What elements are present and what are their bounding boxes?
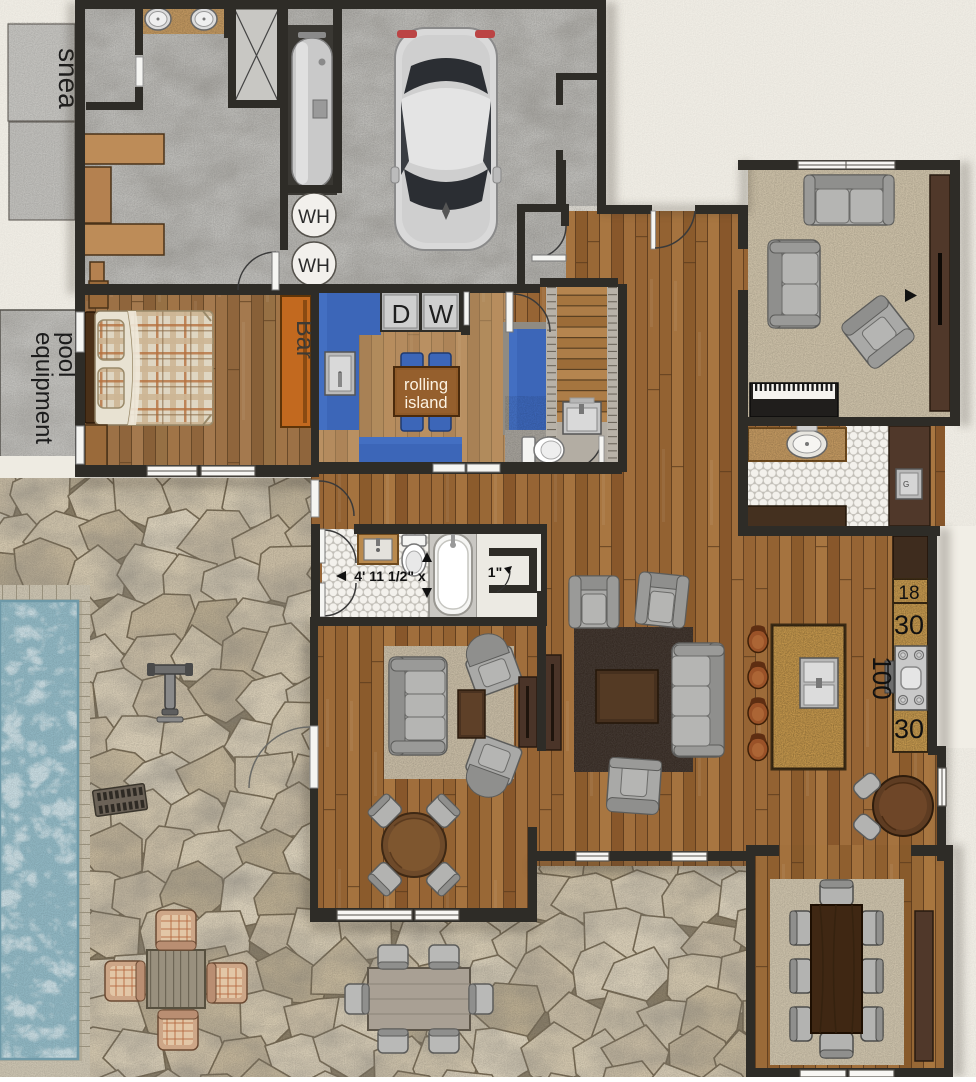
- svg-text:island: island: [404, 394, 447, 412]
- svg-text:18: 18: [898, 583, 919, 604]
- svg-text:30: 30: [894, 610, 924, 640]
- svg-text:rolling: rolling: [404, 376, 448, 394]
- svg-text:30: 30: [894, 714, 924, 744]
- svg-text:1": 1": [488, 564, 502, 580]
- svg-text:equipment: equipment: [30, 332, 57, 444]
- svg-text:D: D: [392, 299, 411, 329]
- svg-text:4' 11 1/2" x: 4' 11 1/2" x: [354, 568, 426, 584]
- svg-text:W: W: [429, 299, 454, 329]
- svg-text:WH: WH: [298, 207, 330, 228]
- svg-text:100: 100: [867, 656, 897, 699]
- svg-text:WH: WH: [298, 256, 330, 277]
- svg-text:G: G: [903, 480, 909, 489]
